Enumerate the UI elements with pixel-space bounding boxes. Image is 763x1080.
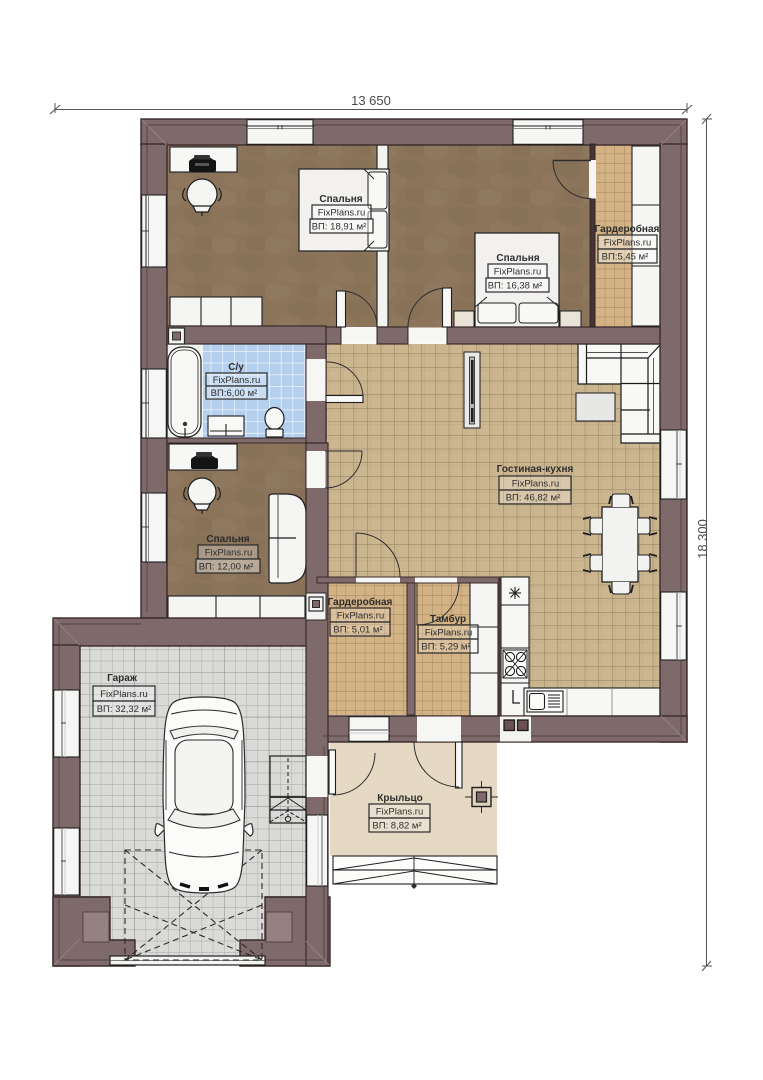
svg-text:FixPlans.ru: FixPlans.ru <box>205 548 253 559</box>
svg-text:Гардеробная: Гардеробная <box>328 596 393 608</box>
svg-text:FixPlans.ru: FixPlans.ru <box>100 689 148 700</box>
svg-text:FixPlans.ru: FixPlans.ru <box>604 238 652 249</box>
svg-text:ВП: 18,91 м²: ВП: 18,91 м² <box>312 222 367 233</box>
svg-text:ВП: 5,01 м²: ВП: 5,01 м² <box>333 625 382 636</box>
svg-text:ВП: 8,82 м²: ВП: 8,82 м² <box>372 821 421 832</box>
svg-text:FixPlans.ru: FixPlans.ru <box>376 807 424 818</box>
svg-text:Спальня: Спальня <box>206 534 249 545</box>
svg-text:FixPlans.ru: FixPlans.ru <box>512 479 560 490</box>
svg-text:ВП:6,00 м²: ВП:6,00 м² <box>211 388 258 399</box>
svg-text:18 300: 18 300 <box>695 519 710 559</box>
svg-text:Крыльцо: Крыльцо <box>377 793 423 804</box>
svg-text:ВП: 46,82 м²: ВП: 46,82 м² <box>506 493 561 504</box>
svg-text:ВП: 16,38 м²: ВП: 16,38 м² <box>488 281 543 292</box>
svg-text:FixPlans.ru: FixPlans.ru <box>494 267 542 278</box>
svg-text:ВП: 12,00 м²: ВП: 12,00 м² <box>199 562 254 573</box>
svg-text:ВП: 5,29 м²: ВП: 5,29 м² <box>421 642 470 653</box>
svg-text:FixPlans.ru: FixPlans.ru <box>318 208 366 219</box>
svg-text:FixPlans.ru: FixPlans.ru <box>337 611 385 622</box>
svg-text:Гараж: Гараж <box>107 673 138 684</box>
svg-text:FixPlans.ru: FixPlans.ru <box>425 628 473 639</box>
svg-text:FixPlans.ru: FixPlans.ru <box>213 375 261 386</box>
svg-text:13 650: 13 650 <box>351 93 391 108</box>
svg-text:Спальня: Спальня <box>496 253 539 264</box>
svg-text:С/у: С/у <box>228 362 244 373</box>
svg-text:Гардеробная: Гардеробная <box>595 223 660 235</box>
svg-text:Гостиная-кухня: Гостиная-кухня <box>497 464 574 475</box>
svg-text:Тамбур: Тамбур <box>430 613 466 625</box>
svg-text:ВП:5,45 м²: ВП:5,45 м² <box>602 252 649 263</box>
svg-text:ВП: 32,32 м²: ВП: 32,32 м² <box>97 704 152 715</box>
svg-text:Спальня: Спальня <box>319 194 362 205</box>
